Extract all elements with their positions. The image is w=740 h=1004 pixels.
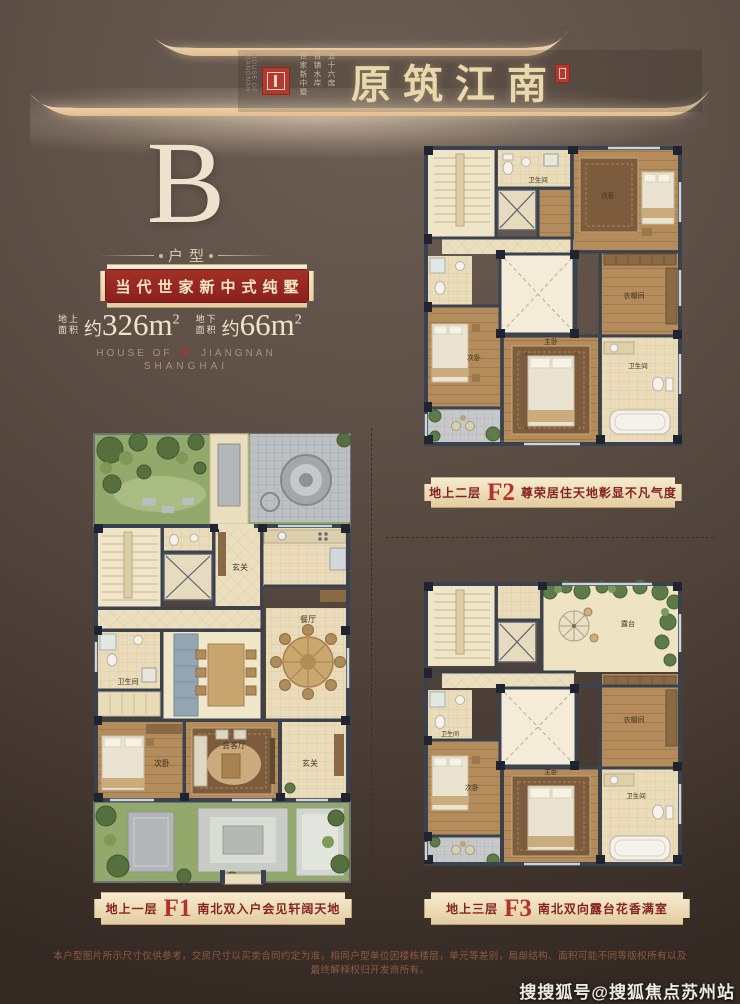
- brand-city: SHANGHAI: [61, 361, 311, 372]
- svg-text:卫生间: 卫生间: [118, 677, 139, 686]
- bedroom-bottom-left: 次卧: [428, 740, 500, 836]
- caption-f3: 地上三层 F3 南北双向露台花香满室: [424, 892, 690, 925]
- caption-f2: 地上二层 F2 尊荣居住天地彰显不凡气度: [424, 477, 682, 508]
- area-label: 地下 面积: [196, 314, 218, 336]
- bathroom-bottom-right: 卫生间: [602, 768, 678, 864]
- svg-text:露台: 露台: [621, 619, 635, 628]
- bathroom-top: 卫生间: [498, 150, 570, 188]
- tagline-column: 世家新中墅: [298, 52, 309, 110]
- stairs: [428, 150, 496, 238]
- hall-top-floor: [498, 586, 540, 620]
- poster-root: HOUSE OF JIANGNAN 五十六席 古镇水岸 世家新中墅 原筑江南 B…: [0, 0, 740, 1004]
- svg-text:餐厅: 餐厅: [300, 615, 316, 624]
- area-value: 约326m2: [84, 309, 180, 340]
- watermark: 搜搜狐号@搜狐焦点苏州站: [519, 978, 735, 1003]
- slogan-plaque: 当代世家新中式纯墅: [100, 264, 314, 308]
- area-value: 约66m2: [222, 309, 302, 340]
- caption-code: F1: [164, 896, 192, 921]
- bathroom-left: 卫生间: [98, 632, 160, 690]
- svg-text:卫生间: 卫生间: [626, 791, 646, 800]
- caption-tagline: 尊荣居住天地彰显不凡气度: [521, 484, 677, 501]
- brand-en-vertical: HOUSE OF JIANGNAN: [244, 54, 256, 108]
- svg-text:卫生间: 卫生间: [628, 361, 648, 370]
- bedroom-bottom-left: 次卧: [98, 722, 184, 798]
- tagline-column: 古镇水岸: [312, 52, 323, 110]
- stairs: [98, 528, 162, 608]
- brand-line-pre: HOUSE OF: [96, 348, 172, 359]
- slogan-text: 当代世家新中式纯墅: [105, 269, 309, 303]
- brand-tagline-columns: 五十六席 古镇水岸 世家新中墅: [298, 52, 337, 110]
- brand-ornament-icon: ❦: [180, 345, 193, 359]
- bedroom-bottom-middle: 主卧: [504, 767, 598, 864]
- kitchen: [262, 528, 348, 602]
- west-kitchen-dining: [162, 632, 262, 720]
- dining-room: 餐厅: [266, 608, 348, 720]
- bathroom-top: [164, 528, 212, 552]
- divider-line: [218, 255, 274, 256]
- brand-line-post: JIANGNAN: [201, 348, 276, 359]
- bedroom-top-right: 次卧: [574, 150, 678, 250]
- disclaimer-text: 本户型图片所示尺寸仅供参考，交房尺寸以买卖合同约定为准，相同户型单位因楼栋楼层，…: [50, 948, 690, 976]
- floorplan-f1: 玄关 卫生间: [82, 428, 362, 886]
- area-label-line: 地下: [196, 314, 218, 325]
- entry-door-gap: [218, 524, 254, 529]
- area-above-ground: 地上 面积 约326m2: [58, 309, 180, 340]
- divider-dot: [209, 254, 213, 258]
- brand-title: 原筑江南: [351, 52, 559, 110]
- svg-text:玄关: 玄关: [232, 562, 248, 572]
- closet-room: 衣帽间: [602, 674, 678, 768]
- balcony: [428, 836, 500, 866]
- roof-terrace: 露台: [542, 580, 681, 672]
- svg-text:次卧: 次卧: [467, 353, 481, 362]
- atrium-void: [500, 688, 576, 766]
- header-logo: HOUSE OF JIANGNAN 五十六席 古镇水岸 世家新中墅 原筑江南: [238, 50, 702, 112]
- divider-line: [98, 255, 154, 256]
- caption-f1: 地上一层 F1 南北双入户会见轩阔天地: [94, 892, 352, 925]
- unit-type-letter: B: [61, 124, 311, 242]
- corridor-floor: [442, 238, 574, 254]
- area-info: 地上 面积 约326m2 地下 面积 约66m2: [58, 309, 368, 340]
- svg-text:主卧: 主卧: [544, 337, 558, 346]
- caption-floor: 地上三层: [446, 900, 498, 917]
- unit-type-label: 户型: [168, 245, 210, 266]
- balcony: [428, 408, 500, 442]
- caption-code: F2: [487, 480, 515, 505]
- floorplan-f2: 卫生间 次卧: [412, 138, 697, 468]
- svg-text:衣帽间: 衣帽间: [624, 715, 645, 724]
- foyer: 玄关: [214, 528, 260, 606]
- tagline-column: 五十六席: [326, 52, 337, 110]
- area-label: 地上 面积: [58, 314, 80, 336]
- bathroom-left: 卫生间: [428, 690, 472, 740]
- section-divider-horizontal: [386, 537, 714, 538]
- garden-south: [94, 802, 350, 884]
- area-label-line: 地上: [58, 314, 80, 325]
- caption-floor: 地上一层: [106, 900, 158, 917]
- svg-text:卫生间: 卫生间: [528, 175, 548, 184]
- svg-text:衣帽间: 衣帽间: [624, 291, 645, 300]
- storage: [98, 692, 160, 716]
- area-label-line: 面积: [196, 325, 218, 336]
- stairs: [428, 586, 496, 666]
- elevator: [498, 190, 536, 230]
- small-seal-icon: [555, 64, 570, 83]
- entry-hall: 玄关: [282, 722, 348, 798]
- caption-tagline: 南北双入户会见轩阔天地: [197, 900, 340, 917]
- corridor-floor: [98, 610, 262, 630]
- svg-text:次卧: 次卧: [601, 191, 615, 200]
- svg-text:次卧: 次卧: [154, 758, 170, 768]
- atrium-void: [500, 254, 576, 334]
- divider-dot: [159, 254, 163, 258]
- bathroom-left: [428, 256, 472, 306]
- svg-text:卫生间: 卫生间: [441, 730, 459, 738]
- caption-tagline: 南北双向露台花香满室: [538, 900, 668, 917]
- brand-seal-icon: [262, 67, 290, 95]
- elevator: [164, 554, 212, 600]
- corridor-floor: [442, 672, 574, 688]
- bedroom-bottom-left: 次卧: [428, 306, 500, 408]
- garden-north: [94, 433, 351, 526]
- svg-text:会客厅: 会客厅: [222, 740, 246, 750]
- closet-room: 衣帽间: [602, 252, 678, 336]
- caption-floor: 地上二层: [429, 484, 481, 501]
- caption-code: F3: [504, 896, 532, 921]
- floorplan-f3: 露台 卫生间 衣帽间 次卧: [412, 574, 697, 886]
- svg-text:次卧: 次卧: [465, 783, 479, 792]
- bedroom-bottom-middle: 主卧: [504, 336, 598, 442]
- brand-line: HOUSE OF ❦ JIANGNAN: [61, 345, 311, 359]
- section-divider-vertical: [371, 428, 372, 886]
- area-label-line: 面积: [58, 325, 80, 336]
- bathroom-bottom-right: 卫生间: [602, 336, 678, 442]
- svg-text:玄关: 玄关: [302, 758, 318, 768]
- area-below-ground: 地下 面积 约66m2: [196, 309, 302, 340]
- living-room: 会客厅: [186, 722, 278, 798]
- unit-type-divider: 户型: [61, 245, 311, 266]
- elevator: [498, 622, 536, 662]
- hall-floor: [538, 190, 572, 238]
